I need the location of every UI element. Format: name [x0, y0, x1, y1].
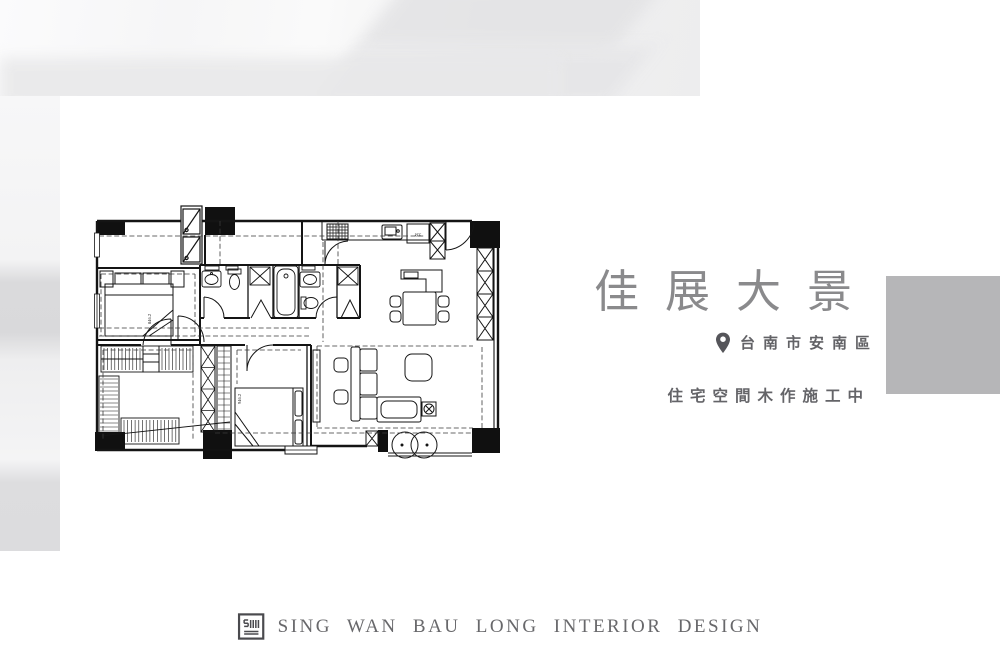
top-photo-strip	[0, 0, 700, 96]
dining-chair	[390, 296, 401, 307]
bath2-toilet	[301, 297, 306, 309]
balcony-round-stool	[411, 432, 437, 458]
bathrooms	[202, 266, 358, 318]
floor-plan: 846.2	[85, 200, 505, 465]
dining-chair	[438, 296, 449, 307]
company-name: SING WAN BAU LONG INTERIOR DESIGN	[278, 616, 763, 638]
company-seal-icon	[238, 613, 265, 640]
brand-block: 佳展大景 台南市安南區 住宅空間木作施工中	[594, 268, 852, 406]
outer-walls	[95, 221, 499, 456]
sofa-back	[351, 347, 360, 421]
location-pin-icon	[715, 332, 731, 354]
side-stool	[334, 358, 348, 372]
master-bed-dim-label: 846.2	[147, 314, 152, 324]
left-photo-strip	[0, 96, 60, 551]
location-text: 台南市安南區	[740, 332, 878, 353]
utility-bay	[181, 206, 202, 264]
dining-area	[390, 292, 449, 325]
location-row: 台南市安南區	[594, 332, 870, 354]
balcony	[366, 431, 437, 458]
ottoman	[405, 354, 432, 381]
poster-canvas: 846.2	[0, 0, 1000, 670]
living-room	[313, 347, 436, 422]
side-stool	[334, 390, 348, 404]
dining-chair	[438, 311, 449, 322]
photo-streak	[0, 58, 560, 96]
photo-streak	[353, 0, 668, 50]
dining-chair	[390, 311, 401, 322]
project-title: 佳展大景	[594, 268, 878, 318]
accent-gray-square	[886, 276, 1000, 394]
second-bed-dim-label: 946.2	[237, 394, 242, 404]
fridge-label: REF.	[413, 234, 421, 238]
island-counter	[401, 270, 442, 292]
tv-cabinet	[313, 350, 320, 422]
interior-walls	[97, 221, 360, 454]
footer: SING WAN BAU LONG INTERIOR DESIGN	[238, 613, 763, 640]
kitchen: REF.	[322, 221, 442, 292]
dining-table	[403, 292, 436, 325]
project-subtitle: 住宅空間木作施工中	[594, 384, 870, 406]
structural-columns	[95, 207, 500, 459]
